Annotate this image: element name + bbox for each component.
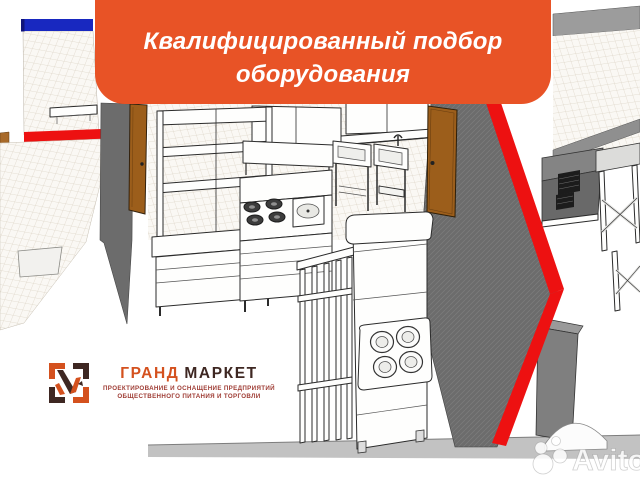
promo-banner: Квалифицированный подбор оборудования xyxy=(95,0,551,104)
far-left-wall xyxy=(21,19,99,135)
watermark-label: Avito xyxy=(572,444,640,477)
brand-name-first: ГРАНД xyxy=(120,365,179,382)
tagline-line-2: ОБЩЕСТВЕННОГО ПИТАНИЯ И ТОРГОВЛИ xyxy=(103,393,275,401)
brand-name-second: МАРКЕТ xyxy=(184,365,257,382)
avito-watermark: Avito xyxy=(526,432,640,478)
brand-name: ГРАНДМАРКЕТ xyxy=(120,365,258,382)
far-right-area xyxy=(542,6,640,311)
avito-logo-icon xyxy=(533,437,567,475)
left-wall xyxy=(0,103,133,330)
brand-tagline: ПРОЕКТИРОВАНИЕ И ОСНАЩЕНИЕ ПРЕДПРИЯТИЙ О… xyxy=(103,385,275,400)
right-door xyxy=(427,106,457,217)
logo-text: ГРАНДМАРКЕТ ПРОЕКТИРОВАНИЕ И ОСНАЩЕНИЕ П… xyxy=(103,365,275,400)
tagline-line-1: ПРОЕКТИРОВАНИЕ И ОСНАЩЕНИЕ ПРЕДПРИЯТИЙ xyxy=(103,385,275,393)
grand-market-logo-icon xyxy=(45,358,93,408)
left-door xyxy=(129,104,147,214)
company-logo: ГРАНДМАРКЕТ ПРОЕКТИРОВАНИЕ И ОСНАЩЕНИЕ П… xyxy=(45,358,275,408)
banner-line-1: Квалифицированный подбор xyxy=(143,25,502,58)
banner-line-2: оборудования xyxy=(236,58,410,91)
listing-image: Квалифицированный подбор оборудования ГР… xyxy=(0,0,640,479)
